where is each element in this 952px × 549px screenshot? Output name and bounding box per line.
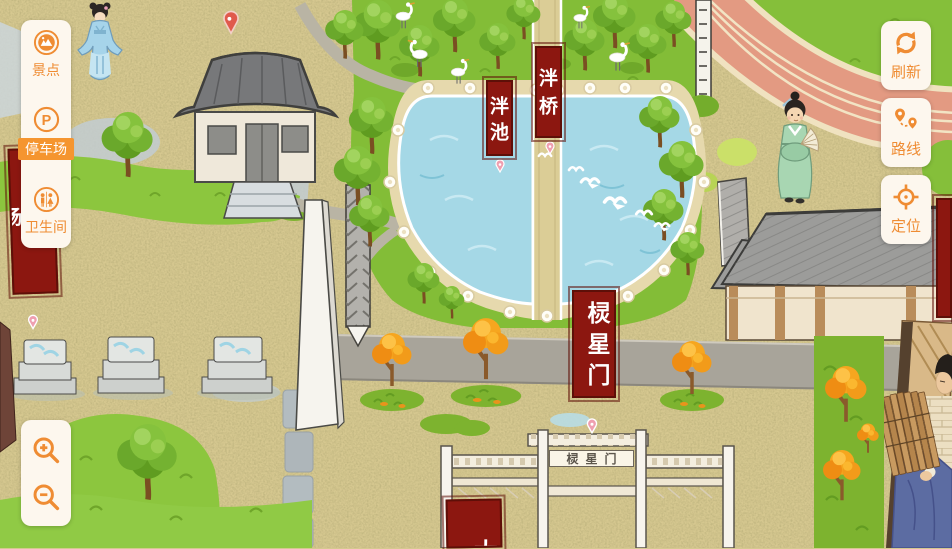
map-canvas[interactable] — [0, 0, 952, 548]
scenic-map-app: { "ui": { "accent_color": "#ef8c33", "ca… — [0, 0, 952, 548]
refresh-icon — [892, 29, 920, 57]
restroom-icon — [33, 186, 60, 213]
right-edge-banner[interactable] — [936, 198, 952, 318]
route-button[interactable]: 路线 — [881, 98, 931, 167]
locate-icon — [892, 183, 920, 211]
gate-plaque: 棂星门 — [549, 450, 634, 467]
zoom-out-icon — [30, 481, 62, 513]
route-label: 路线 — [891, 138, 921, 159]
refresh-button[interactable]: 刷新 — [881, 21, 931, 90]
svg-text:P: P — [41, 112, 51, 128]
zoom-controls — [21, 420, 71, 526]
sidebar-item-parking[interactable]: P 停车场 — [21, 106, 71, 160]
sidebar-panel: 景点 P 停车场 卫生间 — [21, 20, 71, 248]
sidebar-item-label: 停车场 — [18, 138, 74, 160]
route-icon — [892, 106, 920, 134]
pan-pond-banner[interactable]: 泮池 — [486, 80, 513, 156]
zoom-in-icon — [30, 434, 62, 466]
sidebar-item-label: 景点 — [32, 61, 60, 79]
locate-label: 定位 — [891, 215, 921, 236]
refresh-label: 刷新 — [891, 61, 921, 82]
zoom-in-button[interactable] — [29, 433, 63, 467]
south-gate-banner[interactable]: 太 — [446, 499, 503, 549]
sidebar-item-label: 卫生间 — [25, 218, 67, 236]
parking-icon: P — [33, 106, 60, 133]
scenic-spot-icon — [33, 29, 60, 56]
locate-button[interactable]: 定位 — [881, 175, 931, 244]
pan-bridge-banner[interactable]: 泮桥 — [535, 46, 562, 138]
zoom-out-button[interactable] — [29, 480, 63, 514]
sidebar-item-scenic-spots[interactable]: 景点 — [21, 29, 71, 79]
sidebar-item-restroom[interactable]: 卫生间 — [21, 186, 71, 236]
lingxing-gate-banner[interactable]: 棂星门 — [572, 290, 616, 398]
